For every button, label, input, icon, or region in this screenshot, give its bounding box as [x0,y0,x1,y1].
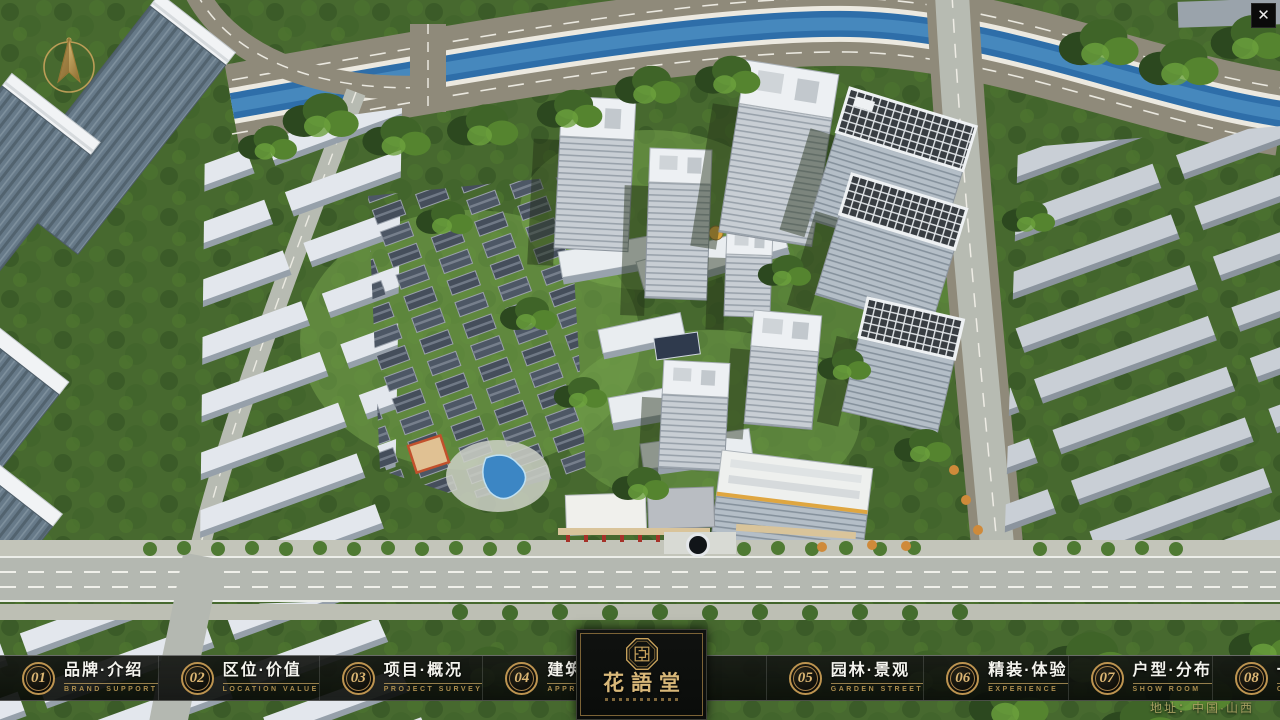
aerial-site-map[interactable] [0,0,1280,720]
nav-sublabel: SHOW ROOM [1133,683,1212,693]
nav-item-project[interactable]: 03 项目·概况 PROJECT SURVEY [320,656,484,700]
nav-item-brand[interactable]: 01 品牌·介绍 BRAND SUPPORT [0,656,159,700]
logo-tagline-decoration [605,698,679,701]
nav-label: 户型·分布 [1133,663,1212,680]
number-badge: 01 [22,662,55,695]
nav-item-location[interactable]: 02 区位·价值 LOCATION VALUE [159,656,320,700]
nav-sublabel: GARDEN STREET [831,683,923,693]
nav-label: 精装·体验 [988,663,1067,680]
nav-label: 区位·价值 [223,663,319,680]
presentation-screen: ✕ 01 品牌·介绍 BRAND SUPPORT 02 区位·价值 LOCATI… [0,0,1280,720]
project-name: 花語堂 [596,673,687,694]
number-badge: 07 [1091,662,1124,695]
nav-sublabel: BRAND SUPPORT [64,683,158,693]
nav-item-interior[interactable]: 06 精装·体验 EXPERIENCE [924,656,1068,700]
nav-sublabel: PROJECT SURVEY [384,683,483,693]
project-address: 地址：中国·山西 [1150,699,1254,716]
nav-item-garden[interactable]: 05 园林·景观 GARDEN STREET [767,656,924,700]
number-badge: 06 [946,662,979,695]
nav-item-views[interactable]: 08 一房·一景 COMMUNITY [1213,656,1280,700]
close-button[interactable]: ✕ [1251,3,1276,28]
nav-label: 品牌·介绍 [64,663,158,680]
nav-label: 园林·景观 [831,663,923,680]
nav-item-floorplans[interactable]: 07 户型·分布 SHOW ROOM [1069,656,1213,700]
nav-sublabel: LOCATION VALUE [223,683,319,693]
compass-icon [36,30,102,100]
number-badge: 02 [181,662,214,695]
project-logo-panel[interactable]: 花語堂 [576,629,707,720]
nav-sublabel: EXPERIENCE [988,683,1067,693]
number-badge: 04 [505,662,538,695]
number-badge: 08 [1235,662,1268,695]
number-badge: 05 [789,662,822,695]
project-seal-icon [625,637,659,671]
nav-label: 项目·概况 [384,663,483,680]
number-badge: 03 [342,662,375,695]
